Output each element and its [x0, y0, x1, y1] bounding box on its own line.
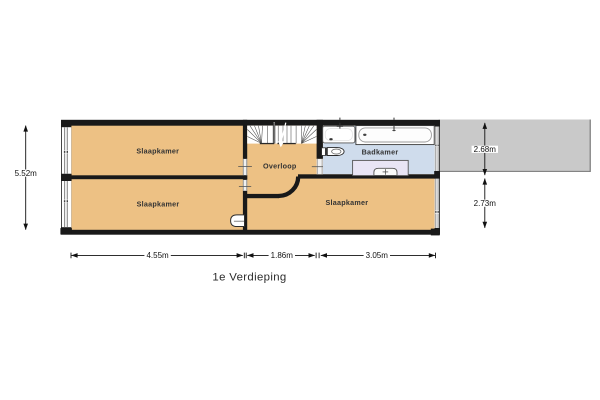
svg-text:1e Verdieping: 1e Verdieping: [212, 271, 286, 283]
svg-text:Slaapkamer: Slaapkamer: [137, 199, 180, 208]
svg-text:3.05m: 3.05m: [366, 251, 389, 260]
svg-text:5.52m: 5.52m: [15, 169, 38, 178]
svg-text:Overloop: Overloop: [263, 161, 297, 170]
svg-text:Slaapkamer: Slaapkamer: [136, 147, 179, 156]
svg-text:2.73m: 2.73m: [474, 199, 497, 208]
svg-text:4.55m: 4.55m: [146, 251, 169, 260]
svg-text:1.86m: 1.86m: [271, 251, 294, 260]
svg-text:2.68m: 2.68m: [474, 145, 497, 154]
svg-text:Badkamer: Badkamer: [362, 148, 399, 157]
svg-text:Slaapkamer: Slaapkamer: [325, 198, 368, 207]
